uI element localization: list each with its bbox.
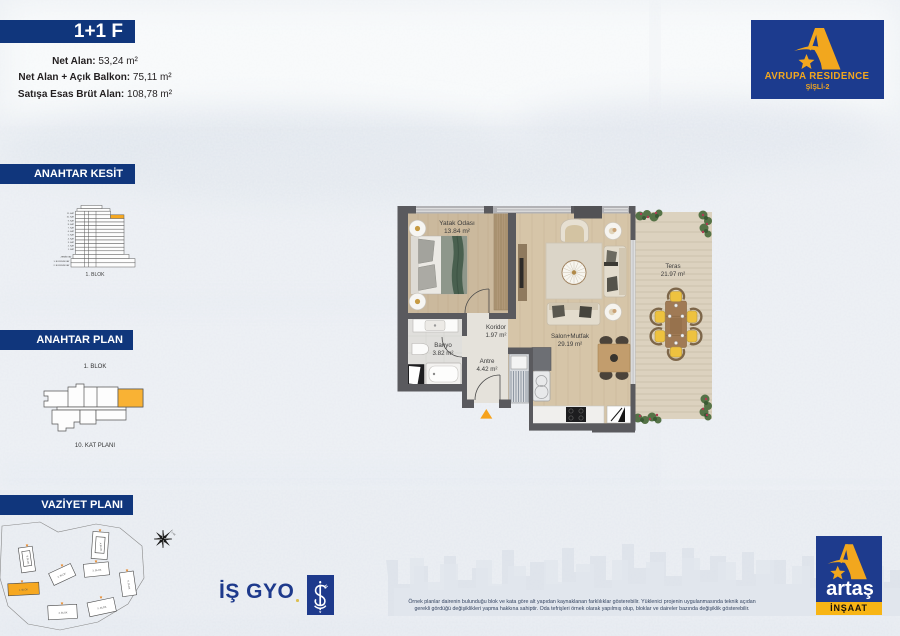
svg-text:4. KAT: 4. KAT <box>68 237 75 240</box>
svg-text:5. KAT: 5. KAT <box>68 234 75 237</box>
svg-text:Teras: Teras <box>665 263 680 270</box>
svg-text:1. BLOK: 1. BLOK <box>19 588 29 591</box>
svg-text:3. KAT: 3. KAT <box>68 241 75 244</box>
svg-text:1. KAT: 1. KAT <box>68 248 75 251</box>
svg-text:ŞİŞLİ-2: ŞİŞLİ-2 <box>806 83 830 91</box>
svg-text:8. KAT: 8. KAT <box>68 223 75 226</box>
svg-text:7. KAT: 7. KAT <box>68 227 75 230</box>
svg-text:1.97 m²: 1.97 m² <box>486 332 507 339</box>
svg-text:2. KAT: 2. KAT <box>68 245 75 248</box>
svg-text:2. BODRUM KAT: 2. BODRUM KAT <box>53 264 70 267</box>
svg-text:artaş: artaş <box>826 578 874 600</box>
svg-text:13.84 m²: 13.84 m² <box>444 228 471 235</box>
svg-text:3.82 m²: 3.82 m² <box>433 350 454 357</box>
svg-text:21.97 m²: 21.97 m² <box>661 271 685 278</box>
svg-text:4.42 m²: 4.42 m² <box>477 366 498 373</box>
svg-text:6. KAT: 6. KAT <box>68 230 75 233</box>
svg-text:Salon+Mutfak: Salon+Mutfak <box>551 333 590 340</box>
svg-text:9. KAT: 9. KAT <box>68 219 75 222</box>
svg-text:ZEMİN KAT: ZEMİN KAT <box>61 256 73 259</box>
svg-text:1. BODRUM KAT: 1. BODRUM KAT <box>53 260 70 263</box>
svg-text:10. KAT: 10. KAT <box>67 216 75 219</box>
svg-text:Yatak Odası: Yatak Odası <box>439 220 475 227</box>
svg-text:Banyo: Banyo <box>434 342 452 349</box>
svg-text:4. BLOK: 4. BLOK <box>58 611 68 614</box>
svg-text:Antre: Antre <box>480 358 495 365</box>
svg-text:29.19 m²: 29.19 m² <box>558 341 582 348</box>
svg-text:11. KAT: 11. KAT <box>67 212 75 215</box>
svg-text:AVRUPA RESIDENCE: AVRUPA RESIDENCE <box>765 71 870 82</box>
svg-text:Koridor: Koridor <box>486 324 506 331</box>
svg-text:1.Cd: 1.Cd <box>171 532 176 537</box>
